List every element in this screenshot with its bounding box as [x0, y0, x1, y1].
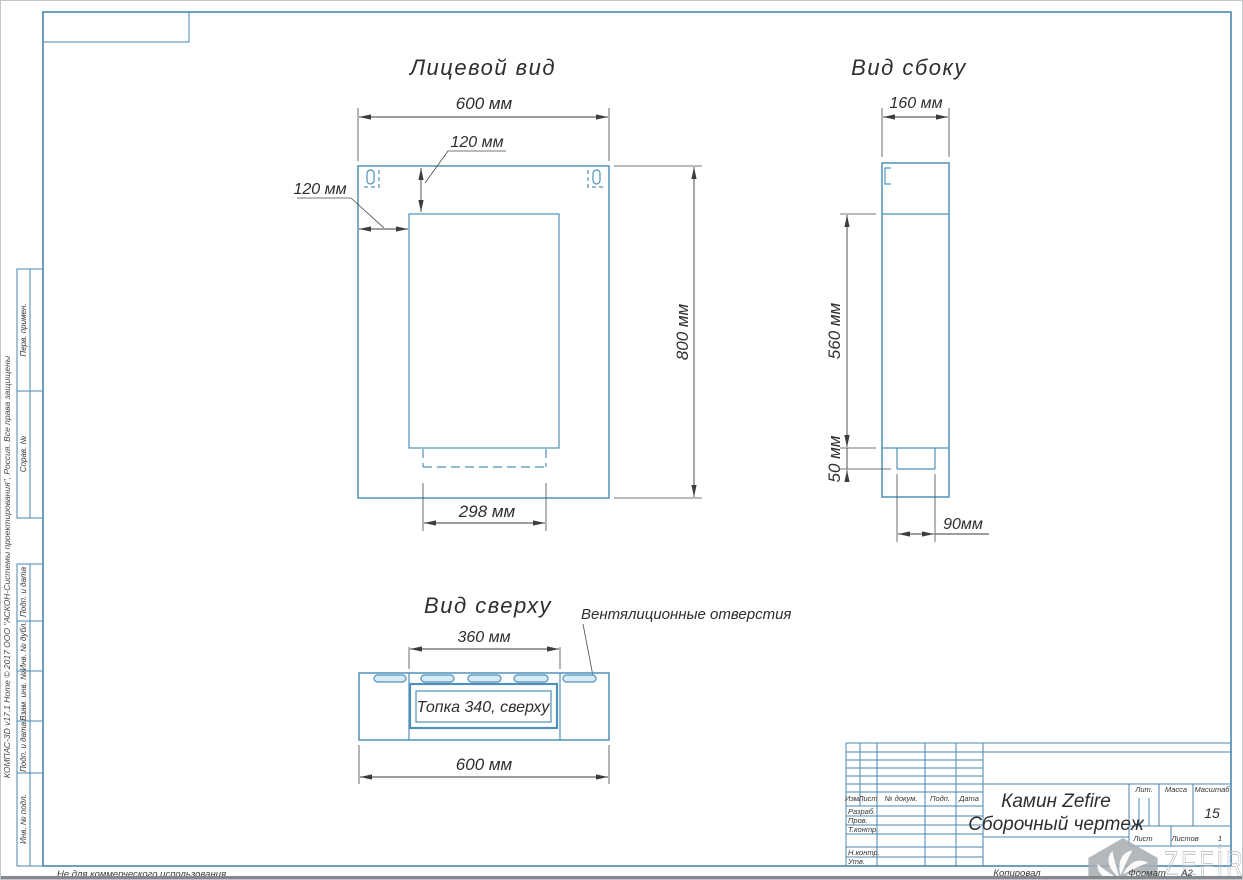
row-nkontr: Н.контр.: [848, 848, 880, 857]
dim-text: 120 мм: [450, 134, 503, 151]
mounting-slot-right: [588, 170, 604, 187]
sidebar-label: Взам. инв. №: [19, 671, 28, 721]
product-name: Камин Zefire: [1001, 791, 1111, 812]
side-view-title: Вид сбоку: [851, 55, 967, 80]
dim-side-body-height: 560 мм: [825, 214, 876, 448]
row-utv: Утв.: [847, 857, 865, 866]
sidebar-cell: Инв. № подл.: [17, 773, 43, 866]
drawing-canvas: Перв. примен. Справ. № Подп. и дата Инв.…: [1, 1, 1243, 880]
firebox-label: Топка 340, сверху: [417, 699, 551, 716]
kompas-copyright-text: КОМПАС-3D v17.1 Home © 2017 ООО "АСКОН-С…: [2, 355, 12, 778]
side-view-mounting-bracket: [885, 168, 891, 184]
sidebar-label: Справ. №: [19, 435, 28, 472]
list-label: Лист: [1132, 834, 1152, 843]
dim-front-height: 800 мм: [614, 166, 702, 498]
dim-top-inner-width: 360 мм: [409, 629, 560, 669]
mounting-slot-left: [363, 170, 379, 187]
dim-front-opening-width: 298 мм: [423, 483, 546, 531]
dim-front-left-offset: 120 мм: [293, 181, 408, 229]
side-view: Вид сбоку 160 мм 560 мм: [825, 55, 989, 542]
front-view-firebox-outline: [409, 214, 559, 448]
sidebar-label: Подп. и дата: [19, 721, 28, 772]
col-data: Дата: [958, 794, 979, 803]
massa-header: Масса: [1165, 785, 1187, 794]
row-prov: Пров.: [848, 816, 868, 825]
row-tkontr: Т.контр.: [848, 825, 878, 834]
top-view: Вид сверху Вентялиционные отверстия Топк…: [359, 593, 791, 784]
vents-annotation: Вентялиционные отверстия: [581, 606, 791, 623]
front-view-title: Лицевой вид: [408, 55, 556, 80]
sidebar-label: Инв. № дубл.: [19, 621, 28, 670]
dim-text: 298 мм: [458, 502, 516, 521]
dim-text: 560 мм: [825, 302, 844, 359]
col-list: Лист: [857, 794, 877, 803]
dim-text: 90мм: [943, 516, 983, 533]
sidebar-cell: Перв. примен.: [17, 269, 43, 391]
side-view-base: [882, 448, 949, 469]
lit-header: Лит.: [1134, 785, 1153, 794]
dim-top-width: 600 мм: [359, 745, 609, 784]
sidebar-cell: Подп. и дата: [17, 721, 43, 773]
scale-value: 15: [1204, 805, 1220, 821]
dim-text: 360 мм: [457, 629, 510, 646]
dim-side-base-depth: 90мм: [897, 474, 989, 542]
top-left-corner-box: [43, 12, 189, 42]
dim-text: 600 мм: [456, 755, 513, 774]
dim-text: 50 мм: [825, 435, 844, 482]
page-bottom-edge: [1, 876, 1242, 879]
masshtab-header: Масштаб: [1194, 785, 1230, 794]
front-view: Лицевой вид 600 мм 120 мм: [293, 55, 702, 531]
col-podp: Подп.: [930, 794, 950, 803]
drawing-frame: [43, 12, 1231, 866]
front-view-hidden-opening: [423, 449, 546, 467]
sidebar-cell: Взам. инв. №: [17, 671, 43, 721]
listov-label: Листов: [1170, 834, 1198, 843]
drawing-sheet: Перв. примен. Справ. № Подп. и дата Инв.…: [0, 0, 1243, 880]
dim-side-depth: 160 мм: [882, 95, 949, 157]
sidebar-label: Подп. и дата: [19, 566, 28, 617]
dim-side-base-height: 50 мм: [825, 435, 891, 482]
sidebar-cell: Инв. № дубл.: [17, 621, 43, 671]
top-view-title: Вид сверху: [424, 593, 552, 618]
sidebar-label: Перв. примен.: [19, 303, 28, 356]
dim-front-top-offset: 120 мм: [421, 134, 506, 212]
col-doc: № докум.: [884, 794, 917, 803]
sidebar-label: Инв. № подл.: [19, 794, 28, 844]
left-sidebar: Перв. примен. Справ. № Подп. и дата Инв.…: [2, 269, 43, 866]
document-type: Сборочный чертеж: [968, 814, 1145, 835]
sidebar-cell: Справ. №: [17, 391, 43, 518]
side-view-body-outline: [882, 163, 949, 497]
dim-text: 120 мм: [293, 181, 346, 198]
dim-text: 600 мм: [456, 94, 513, 113]
logo-wordmark: ZEFİRE: [1164, 843, 1243, 880]
dim-text: 160 мм: [889, 95, 942, 112]
ventilation-slots: [374, 675, 596, 682]
sidebar-cell: Подп. и дата: [17, 564, 43, 621]
row-razrab: Разраб.: [848, 807, 875, 816]
sheets-value: 1: [1218, 834, 1222, 843]
vents-leader-line: [583, 624, 593, 676]
border-frame: [43, 12, 1231, 866]
dim-text: 800 мм: [673, 303, 692, 360]
firebox-top: Топка 340, сверху: [410, 684, 557, 728]
